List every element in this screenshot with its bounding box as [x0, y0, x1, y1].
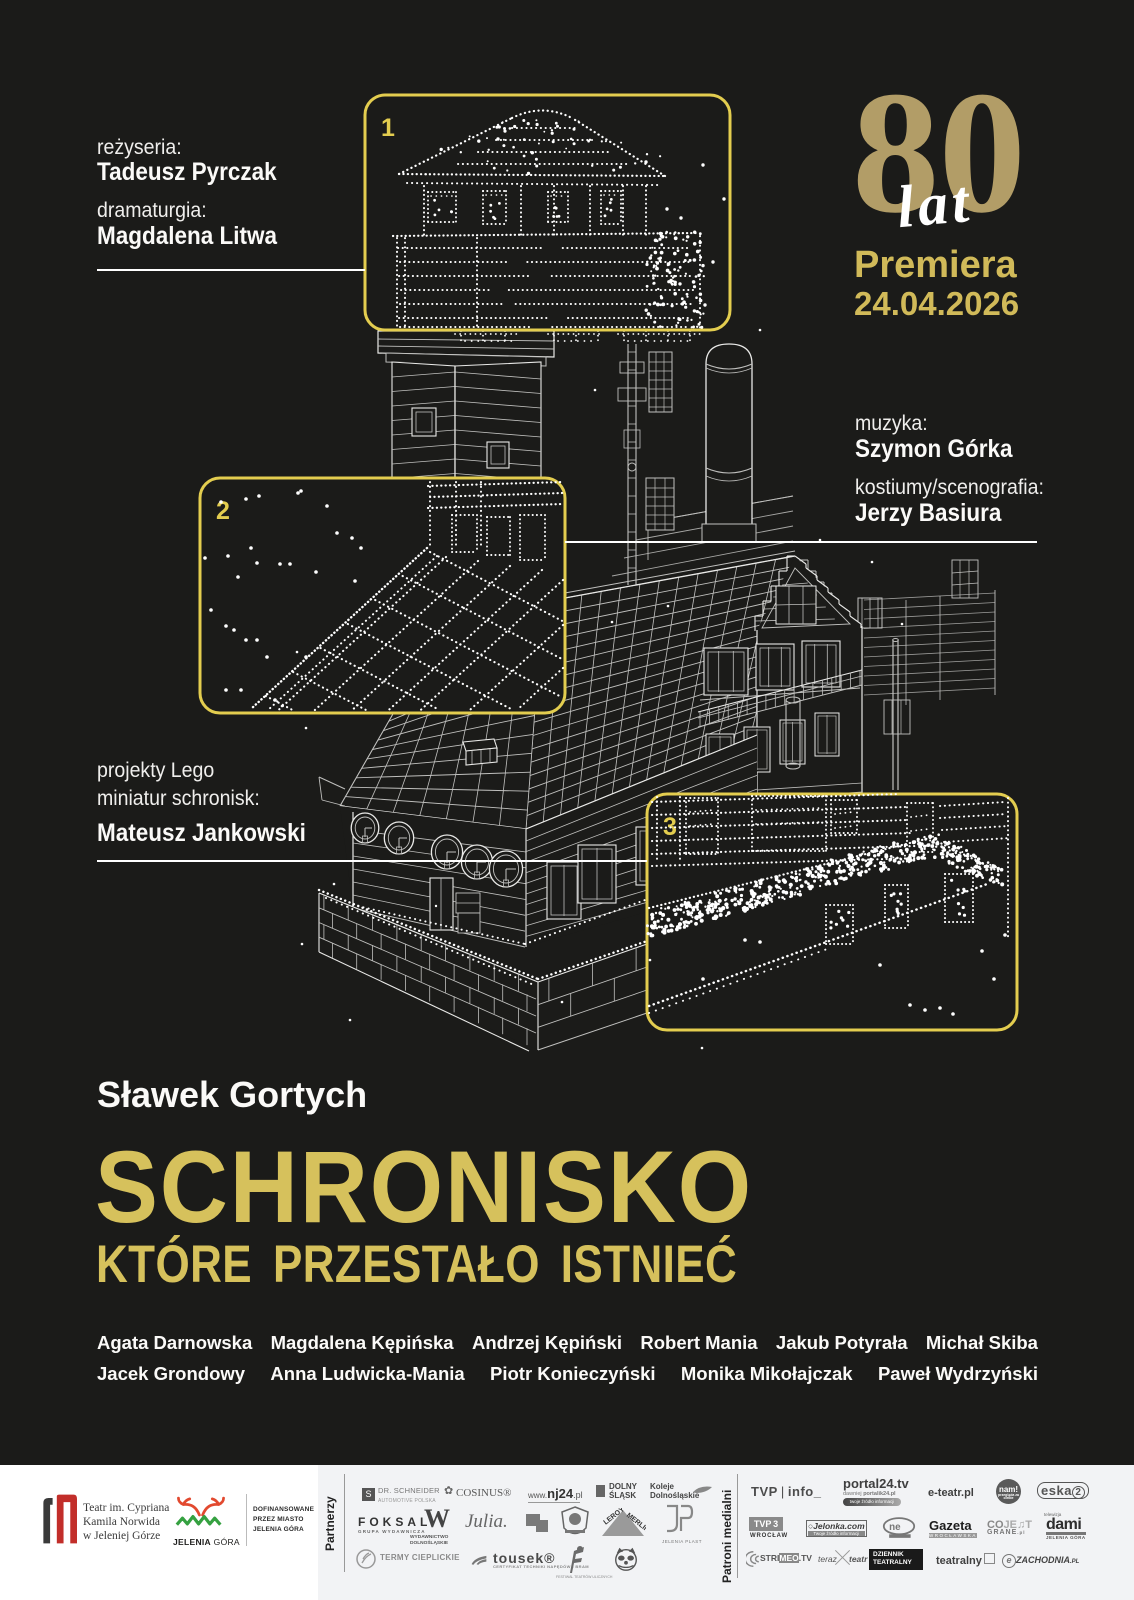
svg-text:ne: ne: [889, 1522, 901, 1533]
svg-text:2: 2: [216, 497, 230, 525]
svg-text:1: 1: [381, 114, 395, 142]
